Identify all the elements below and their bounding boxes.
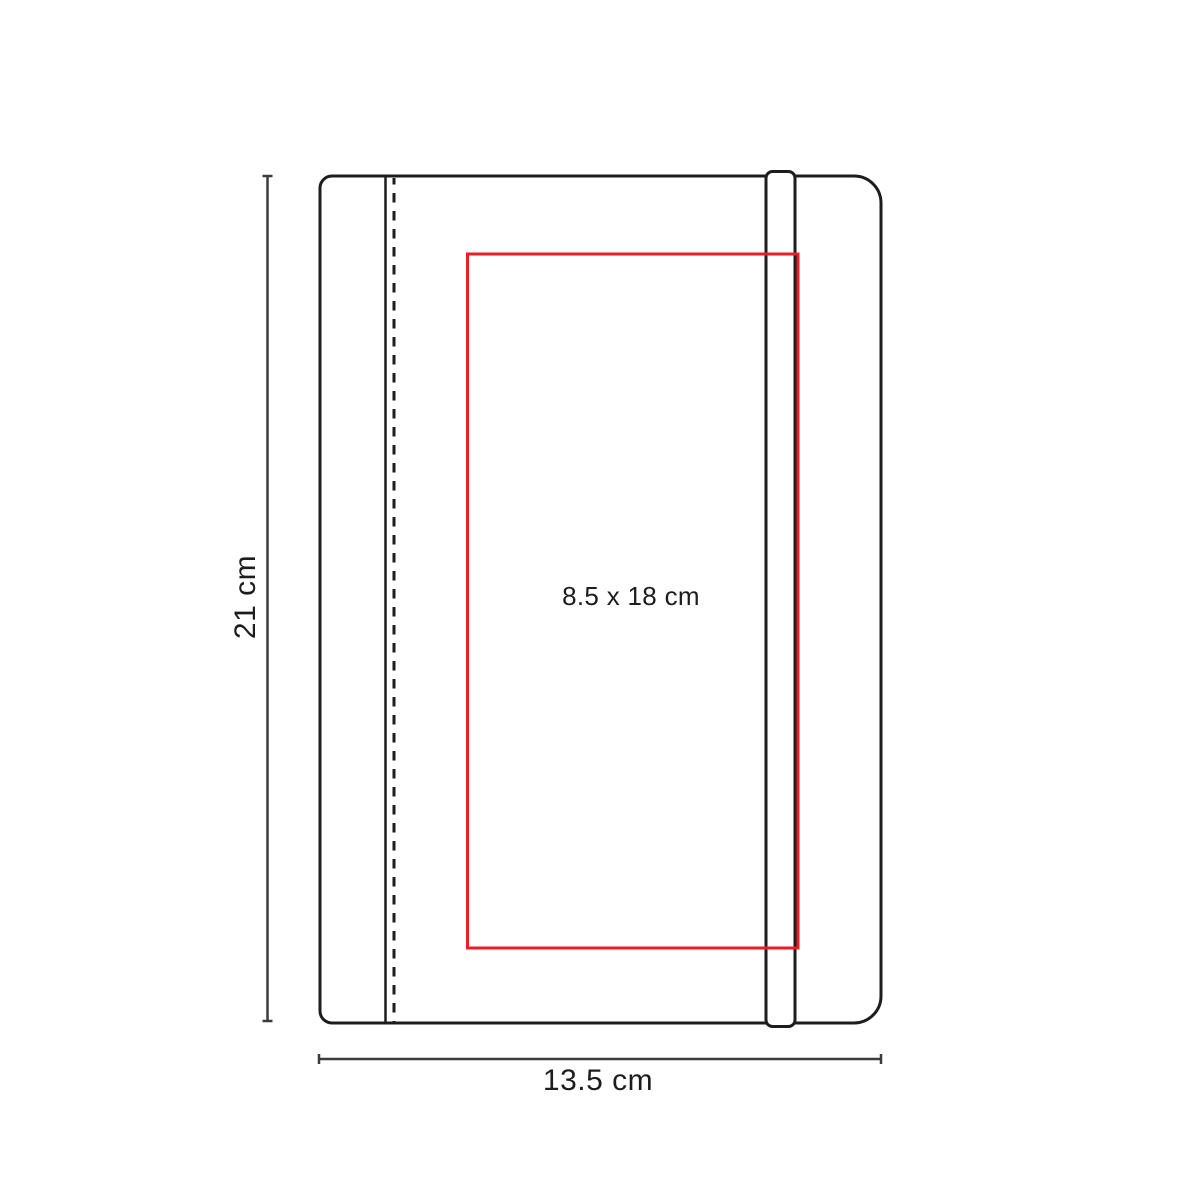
product-diagram: 21 cm 13.5 cm 8.5 x 18 cm (0, 0, 1200, 1200)
print-area-label: 8.5 x 18 cm (521, 581, 741, 612)
width-dimension-label: 13.5 cm (498, 1064, 698, 1098)
height-dimension-label: 21 cm (229, 537, 263, 657)
width-dimension-line (319, 1054, 881, 1064)
elastic-band (766, 172, 795, 1027)
height-dimension-line (263, 176, 273, 1021)
